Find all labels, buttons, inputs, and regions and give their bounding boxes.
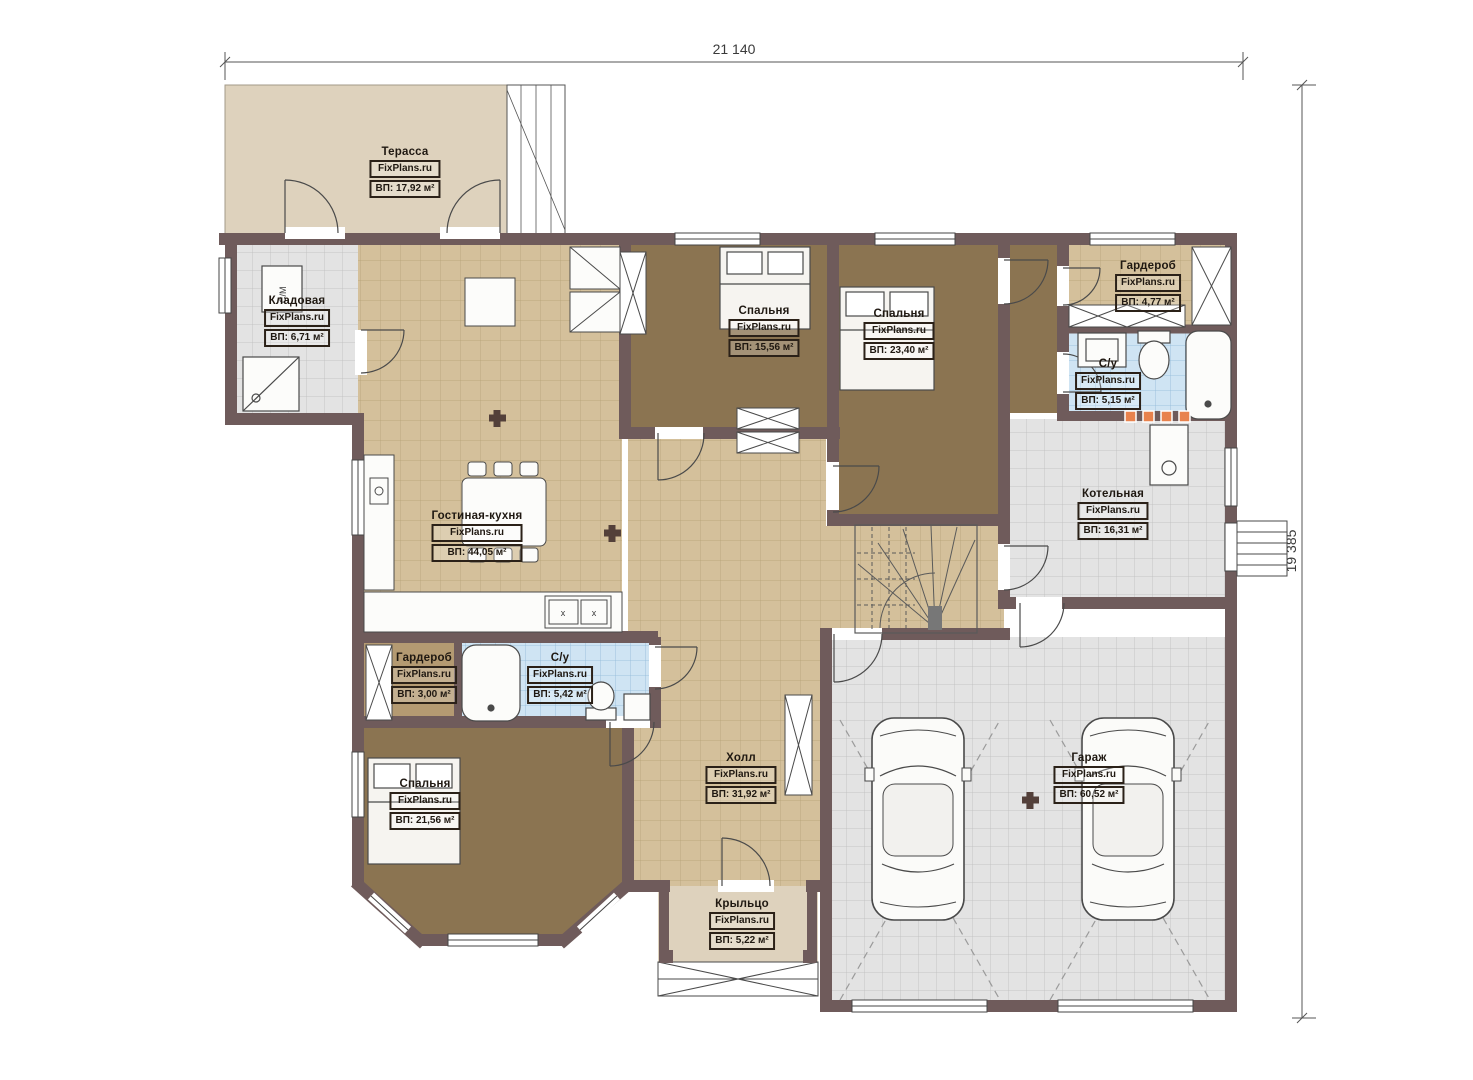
room-label-porch: Крыльцо FixPlans.ru ВП: 5,22 м²	[709, 898, 775, 950]
room-label-living-kitchen: Гостиная-кухня FixPlans.ru ВП: 44,05 м²	[432, 510, 523, 562]
room-label-storage: Кладовая FixPlans.ru ВП: 6,71 м²	[264, 295, 330, 347]
room-label-bedroom-2: Спальня FixPlans.ru ВП: 23,40 м²	[863, 308, 934, 360]
stove-mark-2: x	[592, 608, 597, 618]
car-2	[1075, 718, 1181, 920]
room-label-bathroom-2: С/у FixPlans.ru ВП: 5,42 м²	[527, 652, 593, 704]
room-label-bedroom-3: Спальня FixPlans.ru ВП: 21,56 м²	[389, 778, 460, 830]
room-label-wardrobe-2: Гардероб FixPlans.ru ВП: 3,00 м²	[391, 652, 457, 704]
stove-mark-1: x	[561, 608, 566, 618]
boiler-fixtures	[1150, 425, 1188, 485]
room-label-bedroom-1: Спальня FixPlans.ru ВП: 15,56 м²	[728, 305, 799, 357]
room-label-garage: Гараж FixPlans.ru ВП: 60,52 м²	[1053, 752, 1124, 804]
dimension-top: 21 140	[220, 41, 1248, 80]
dimension-width-label: 21 140	[713, 41, 756, 57]
room-label-hall: Холл FixPlans.ru ВП: 31,92 м²	[705, 752, 776, 804]
room-label-wardrobe-1: Гардероб FixPlans.ru ВП: 4,77 м²	[1115, 260, 1181, 312]
room-label-terrace: Терасса FixPlans.ru ВП: 17,92 м²	[369, 146, 440, 198]
car-1	[865, 718, 971, 920]
room-label-boiler: Котельная FixPlans.ru ВП: 16,31 м²	[1077, 488, 1148, 540]
floor-plan-page: 21 140 19 385	[0, 0, 1473, 1080]
exterior-side-steps	[1237, 521, 1287, 576]
room-label-bathroom-1: С/у FixPlans.ru ВП: 5,15 м²	[1075, 358, 1141, 410]
dimension-right: 19 385	[1283, 80, 1316, 1023]
